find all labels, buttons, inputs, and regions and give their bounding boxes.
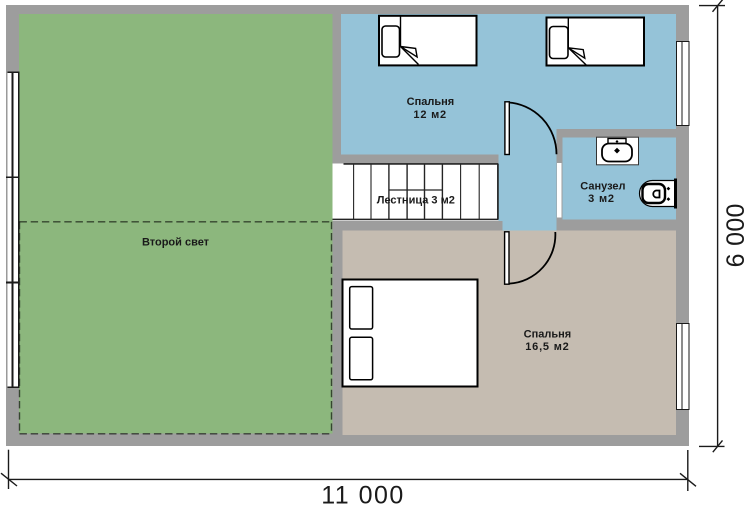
- svg-text:16,5 м2: 16,5 м2: [525, 341, 569, 353]
- svg-text:Лестница 3 м2: Лестница 3 м2: [377, 195, 455, 207]
- svg-text:6 000: 6 000: [722, 203, 744, 267]
- svg-text:Второй свет: Второй свет: [142, 237, 210, 249]
- svg-text:Санузел: Санузел: [580, 180, 625, 192]
- svg-text:Спальня: Спальня: [524, 329, 572, 341]
- svg-text:3 м2: 3 м2: [588, 193, 615, 205]
- svg-text:12 м2: 12 м2: [413, 109, 447, 121]
- svg-text:11 000: 11 000: [321, 482, 405, 505]
- svg-text:Спальня: Спальня: [407, 96, 455, 108]
